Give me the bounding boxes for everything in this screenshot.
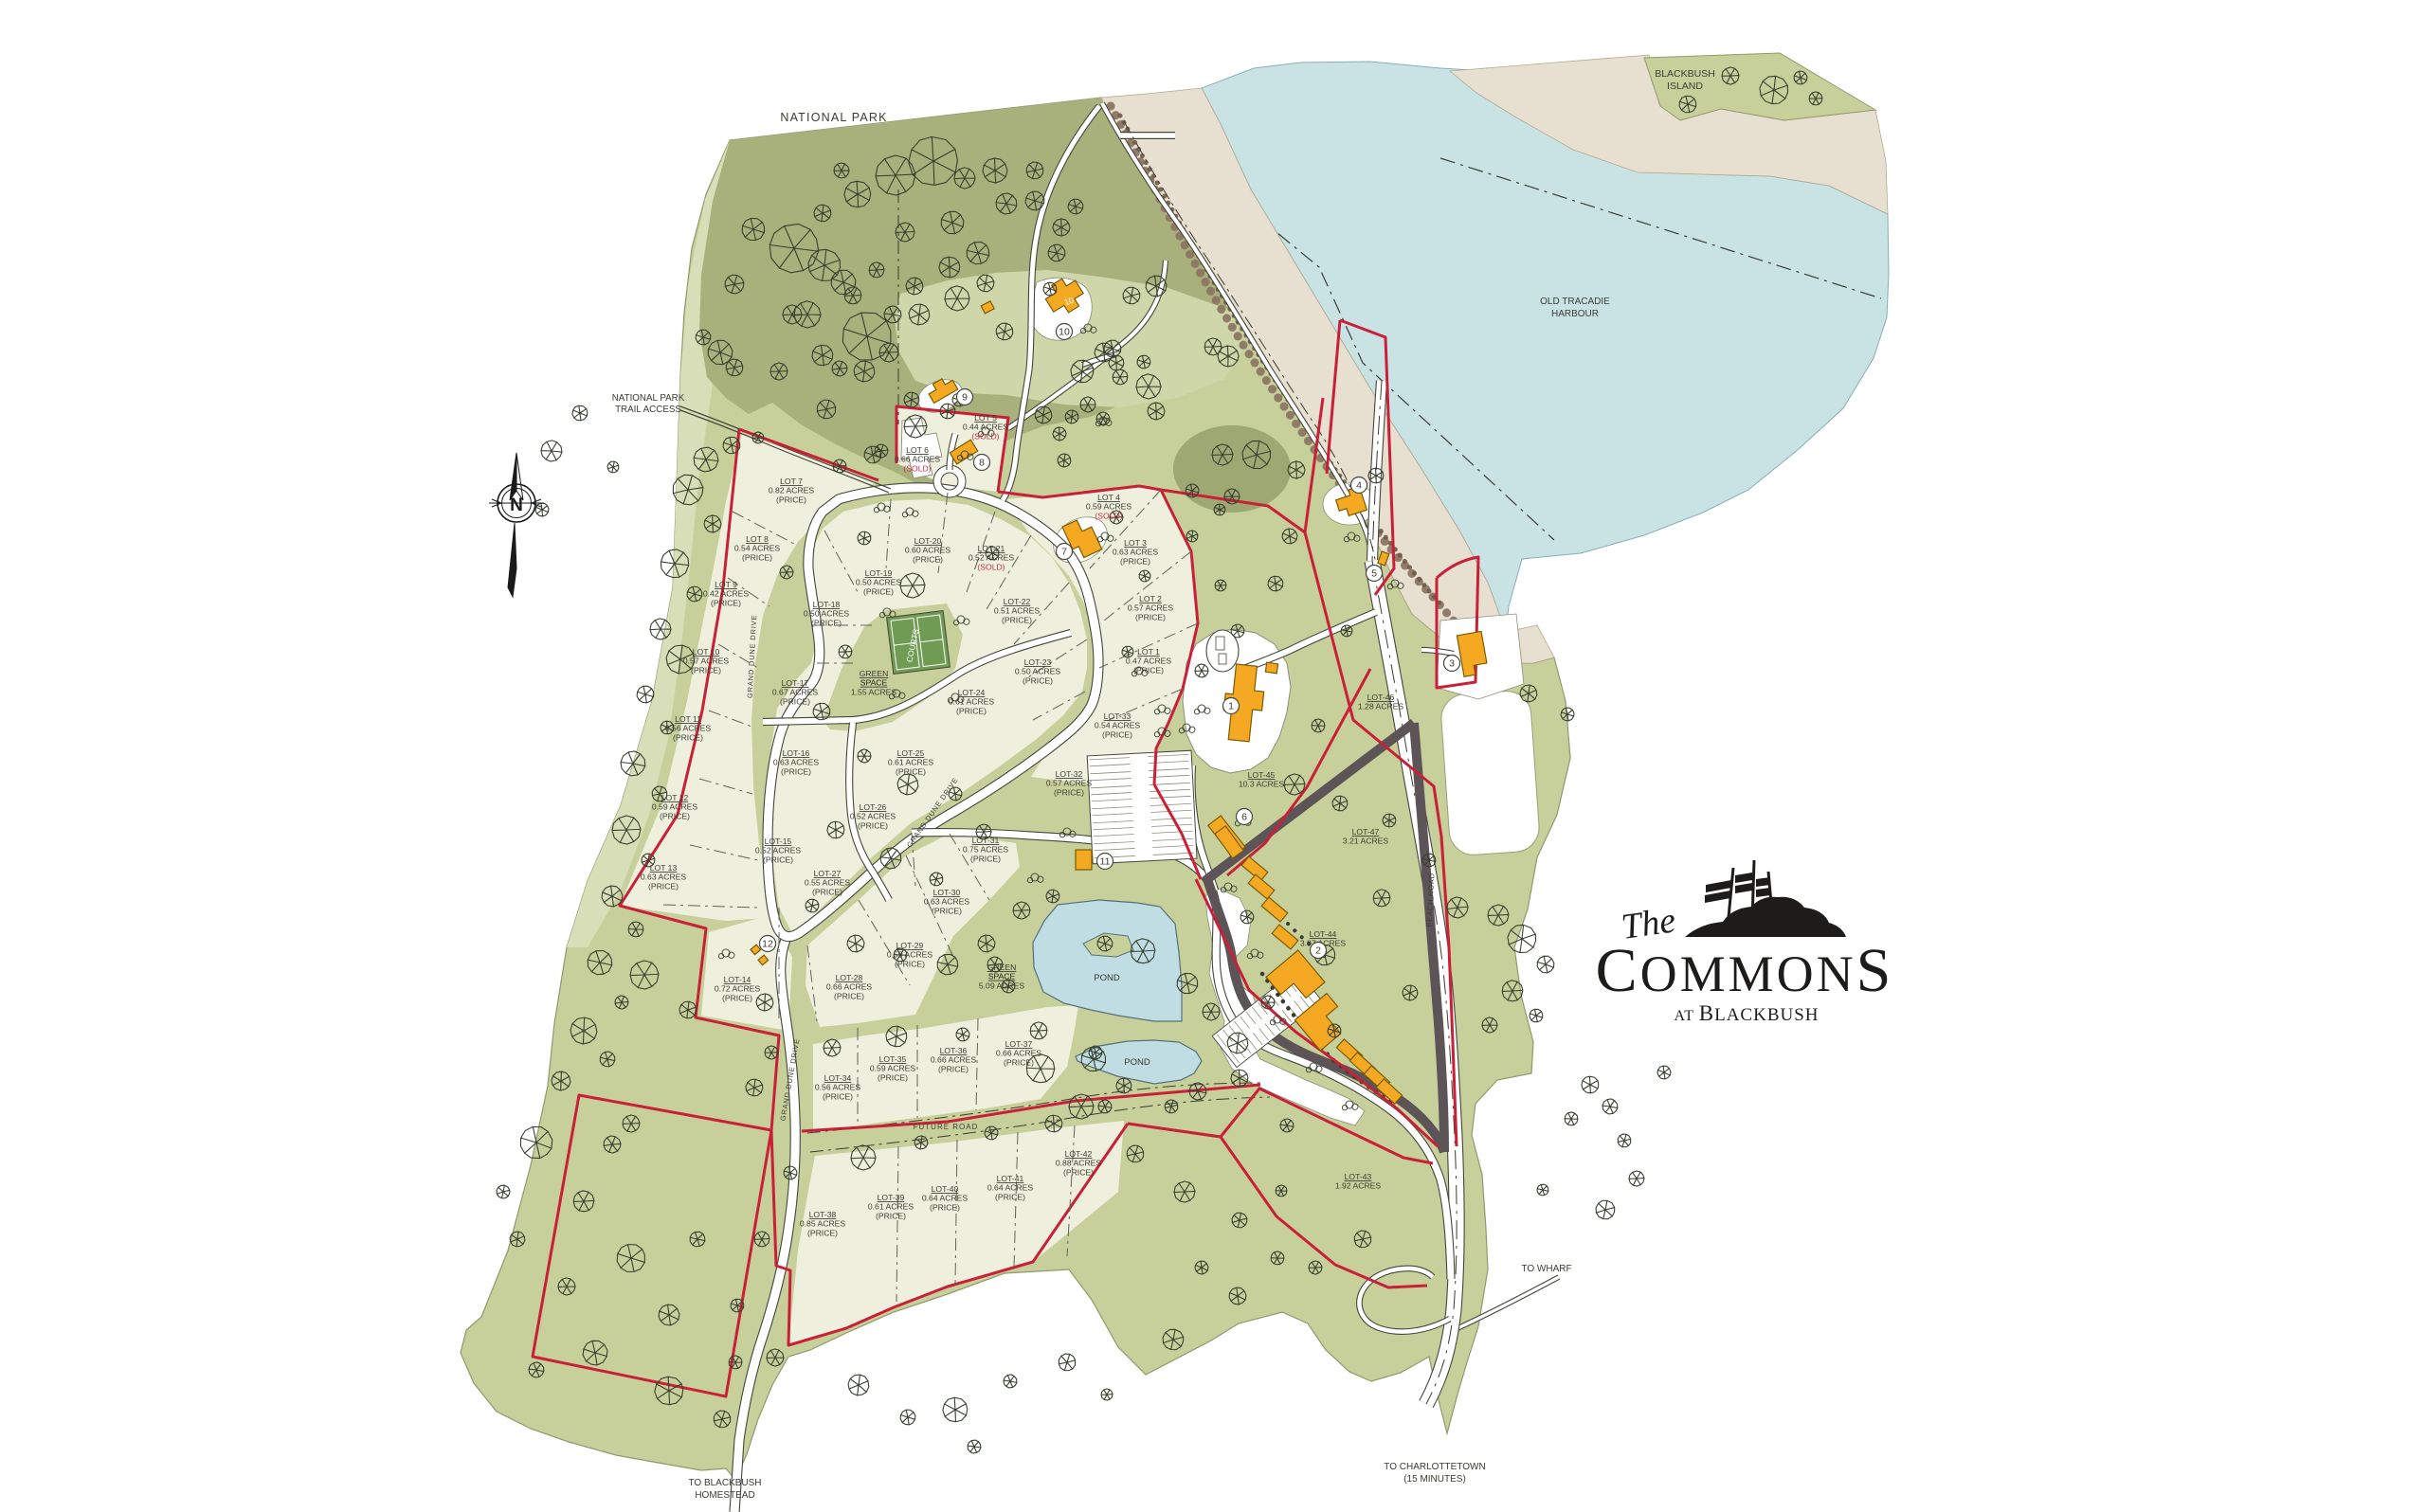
svg-text:FUTURE ROAD: FUTURE ROAD <box>914 1123 979 1131</box>
svg-text:NATIONAL PARK: NATIONAL PARK <box>780 111 887 124</box>
svg-text:BLACKBUSH: BLACKBUSH <box>1655 68 1715 80</box>
svg-text:12: 12 <box>762 939 773 950</box>
svg-text:TO BLACKBUSH: TO BLACKBUSH <box>688 1478 761 1488</box>
svg-text:SPACE: SPACE <box>988 972 1016 981</box>
svg-text:ISLAND: ISLAND <box>1667 81 1703 92</box>
svg-text:5: 5 <box>1371 568 1377 580</box>
svg-text:2: 2 <box>1315 945 1321 957</box>
svg-text:3: 3 <box>1449 658 1455 670</box>
svg-text:POND: POND <box>1094 973 1120 983</box>
svg-text:10: 10 <box>1059 327 1070 338</box>
svg-text:7: 7 <box>1061 547 1067 558</box>
svg-text:9: 9 <box>962 392 968 404</box>
svg-text:NATIONAL PARK: NATIONAL PARK <box>612 393 685 404</box>
svg-text:HARBOUR: HARBOUR <box>1551 309 1599 319</box>
svg-text:1: 1 <box>1228 701 1234 712</box>
svg-text:TO CHARLOTTETOWN: TO CHARLOTTETOWN <box>1384 1462 1485 1472</box>
svg-text:POND: POND <box>1124 1057 1150 1068</box>
svg-text:COMMONS: COMMONS <box>1596 936 1894 1005</box>
svg-text:11: 11 <box>1100 856 1111 868</box>
svg-text:6: 6 <box>1241 812 1247 823</box>
svg-text:TO WHARF: TO WHARF <box>1521 1264 1571 1274</box>
svg-text:N: N <box>510 495 523 515</box>
svg-text:(15 MINUTES): (15 MINUTES) <box>1403 1474 1466 1485</box>
svg-text:SPACE: SPACE <box>860 678 888 688</box>
svg-text:OLD TRACADIE: OLD TRACADIE <box>1540 297 1610 307</box>
svg-text:4: 4 <box>1356 480 1362 492</box>
svg-text:8: 8 <box>979 458 985 469</box>
svg-text:TRAIL ACCESS: TRAIL ACCESS <box>615 405 681 415</box>
svg-text:HOMESTEAD: HOMESTEAD <box>695 1490 754 1501</box>
